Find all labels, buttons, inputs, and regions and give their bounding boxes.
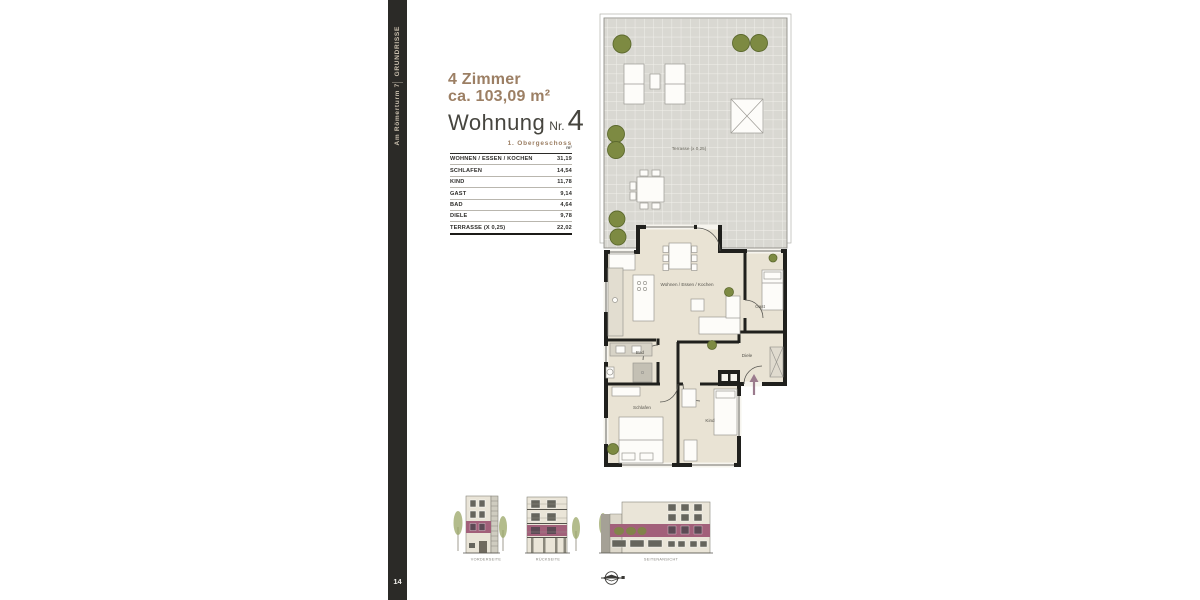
elevation-rueckseite: RÜCKSEITE [525,497,580,562]
room-label: DIELE [450,213,467,219]
terrace: Terrasse (x 0,25) [600,14,791,248]
room-label: GAST [450,191,466,197]
table-row: DIELE 9,78 [450,211,572,222]
room-label: SCHLAFEN [450,168,482,174]
room-value: 31,19 [557,156,572,162]
room-value: 9,14 [560,191,572,197]
sidebar: GRUNDRISSE Am Römerturm 7 14 [388,0,407,600]
room-value: 4,64 [560,202,572,208]
hall-label: Diele [742,353,753,358]
table-row: KIND 11,78 [450,177,572,188]
room-label: BAD [450,202,463,208]
apartment: Wohnen / Essen / Kochen Gast Bad Diele S… [604,225,786,468]
guest-room-label: Gast [755,304,765,309]
page-number: 14 [388,577,407,586]
room-value: 22,02 [557,225,572,231]
unit-nr-prefix: Nr. [549,119,564,133]
area-table-unit-header: m² [450,146,572,154]
room-value: 9,78 [560,213,572,219]
north-arrow-icon [596,568,628,588]
bedroom-label: Schlafen [633,405,651,410]
elevation-label-side: SEITENANSICHT [644,558,679,562]
table-row: BAD 4,64 [450,200,572,211]
sidebar-section-label: GRUNDRISSE [394,26,401,76]
terrace-label: Terrasse (x 0,25) [672,146,707,151]
room-value: 14,54 [557,168,572,174]
bath-label: Bad [636,350,645,355]
room-label: WOHNEN / ESSEN / KOCHEN [450,156,533,162]
child-room-label: Kind [705,418,715,423]
elevation-drawings: VORDERSEITE RÜCKSEITE [450,492,720,564]
brochure-page: GRUNDRISSE Am Römerturm 7 14 4 Zimmer ca… [0,0,1200,600]
area-table: m² WOHNEN / ESSEN / KOCHEN 31,19 SCHLAFE… [450,146,572,235]
table-row: SCHLAFEN 14,54 [450,165,572,176]
unit-title: WohnungNr.4 [448,108,572,139]
floor-plan: Terrasse (x 0,25) [595,10,795,480]
living-room-label: Wohnen / Essen / Kochen [660,282,713,287]
title-block: 4 Zimmer ca. 103,09 m² WohnungNr.4 1. Ob… [448,71,572,147]
unit-word: Wohnung [448,110,545,135]
elevation-label-rear: RÜCKSEITE [536,558,561,562]
room-value: 11,78 [557,179,572,185]
unit-number: 4 [568,105,584,137]
rooms-count-line: 4 Zimmer [448,71,572,88]
sidebar-project-label: Am Römerturm 7 [394,83,401,146]
room-label: TERRASSE (X 0,25) [450,225,505,231]
room-label: KIND [450,179,464,185]
table-row: GAST 9,14 [450,188,572,199]
table-row: TERRASSE (X 0,25) 22,02 [450,222,572,234]
elevation-seitenansicht: SEITENANSICHT [599,502,713,562]
area-line: ca. 103,09 m² [448,88,572,105]
elevation-vorderseite: VORDERSEITE [454,496,508,562]
table-row: WOHNEN / ESSEN / KOCHEN 31,19 [450,154,572,165]
elevation-label-front: VORDERSEITE [471,558,502,562]
